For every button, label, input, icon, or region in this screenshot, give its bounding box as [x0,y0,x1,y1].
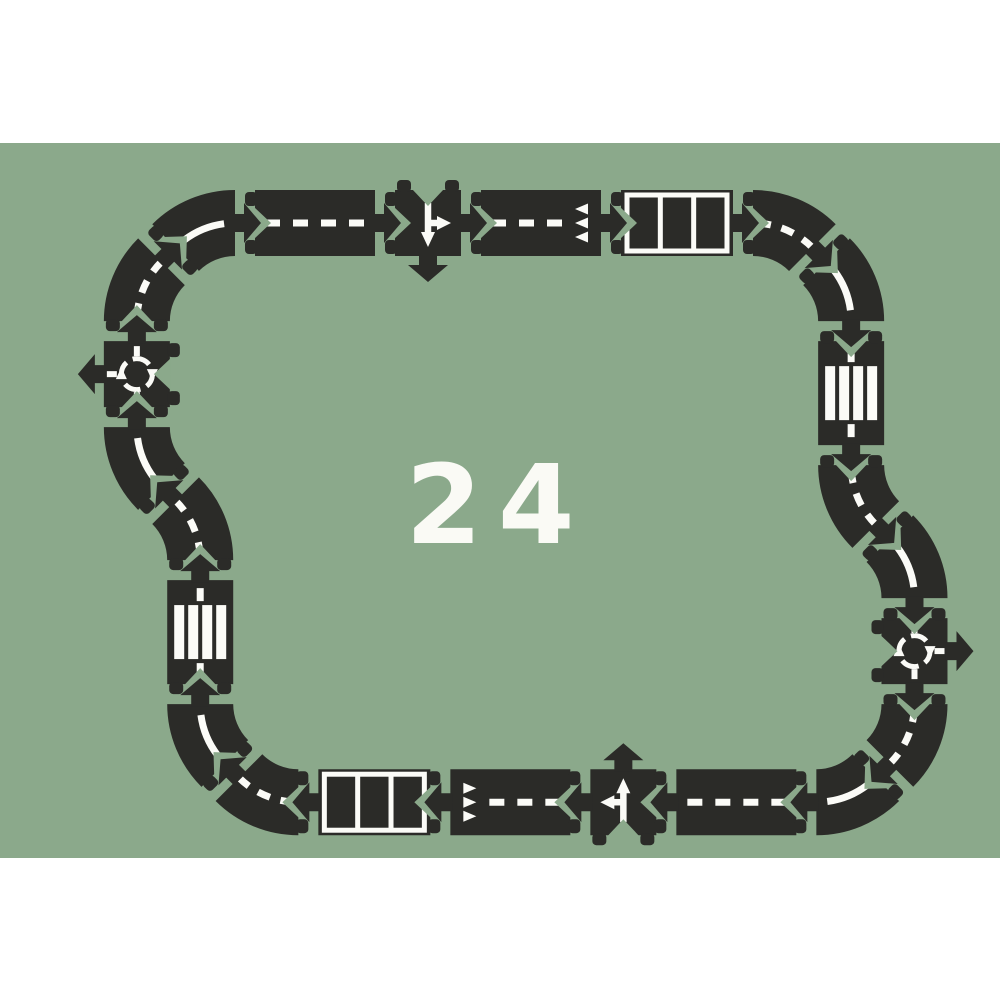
track-piece-3-straight [471,190,601,256]
track-piece-16-parking [318,769,440,835]
road-track-illustration: 24 [0,0,1000,1000]
track-piece-4-parking [611,190,733,256]
track-piece-19-crosswalk [167,580,233,694]
track-piece-1-straight [245,190,375,256]
track-piece-13-straight [676,769,806,835]
track-piece-7-crosswalk [818,331,884,445]
piece-count-label: 24 [405,441,590,569]
track-piece-15-straight [450,769,580,835]
product-image: 24 [0,0,1000,1000]
